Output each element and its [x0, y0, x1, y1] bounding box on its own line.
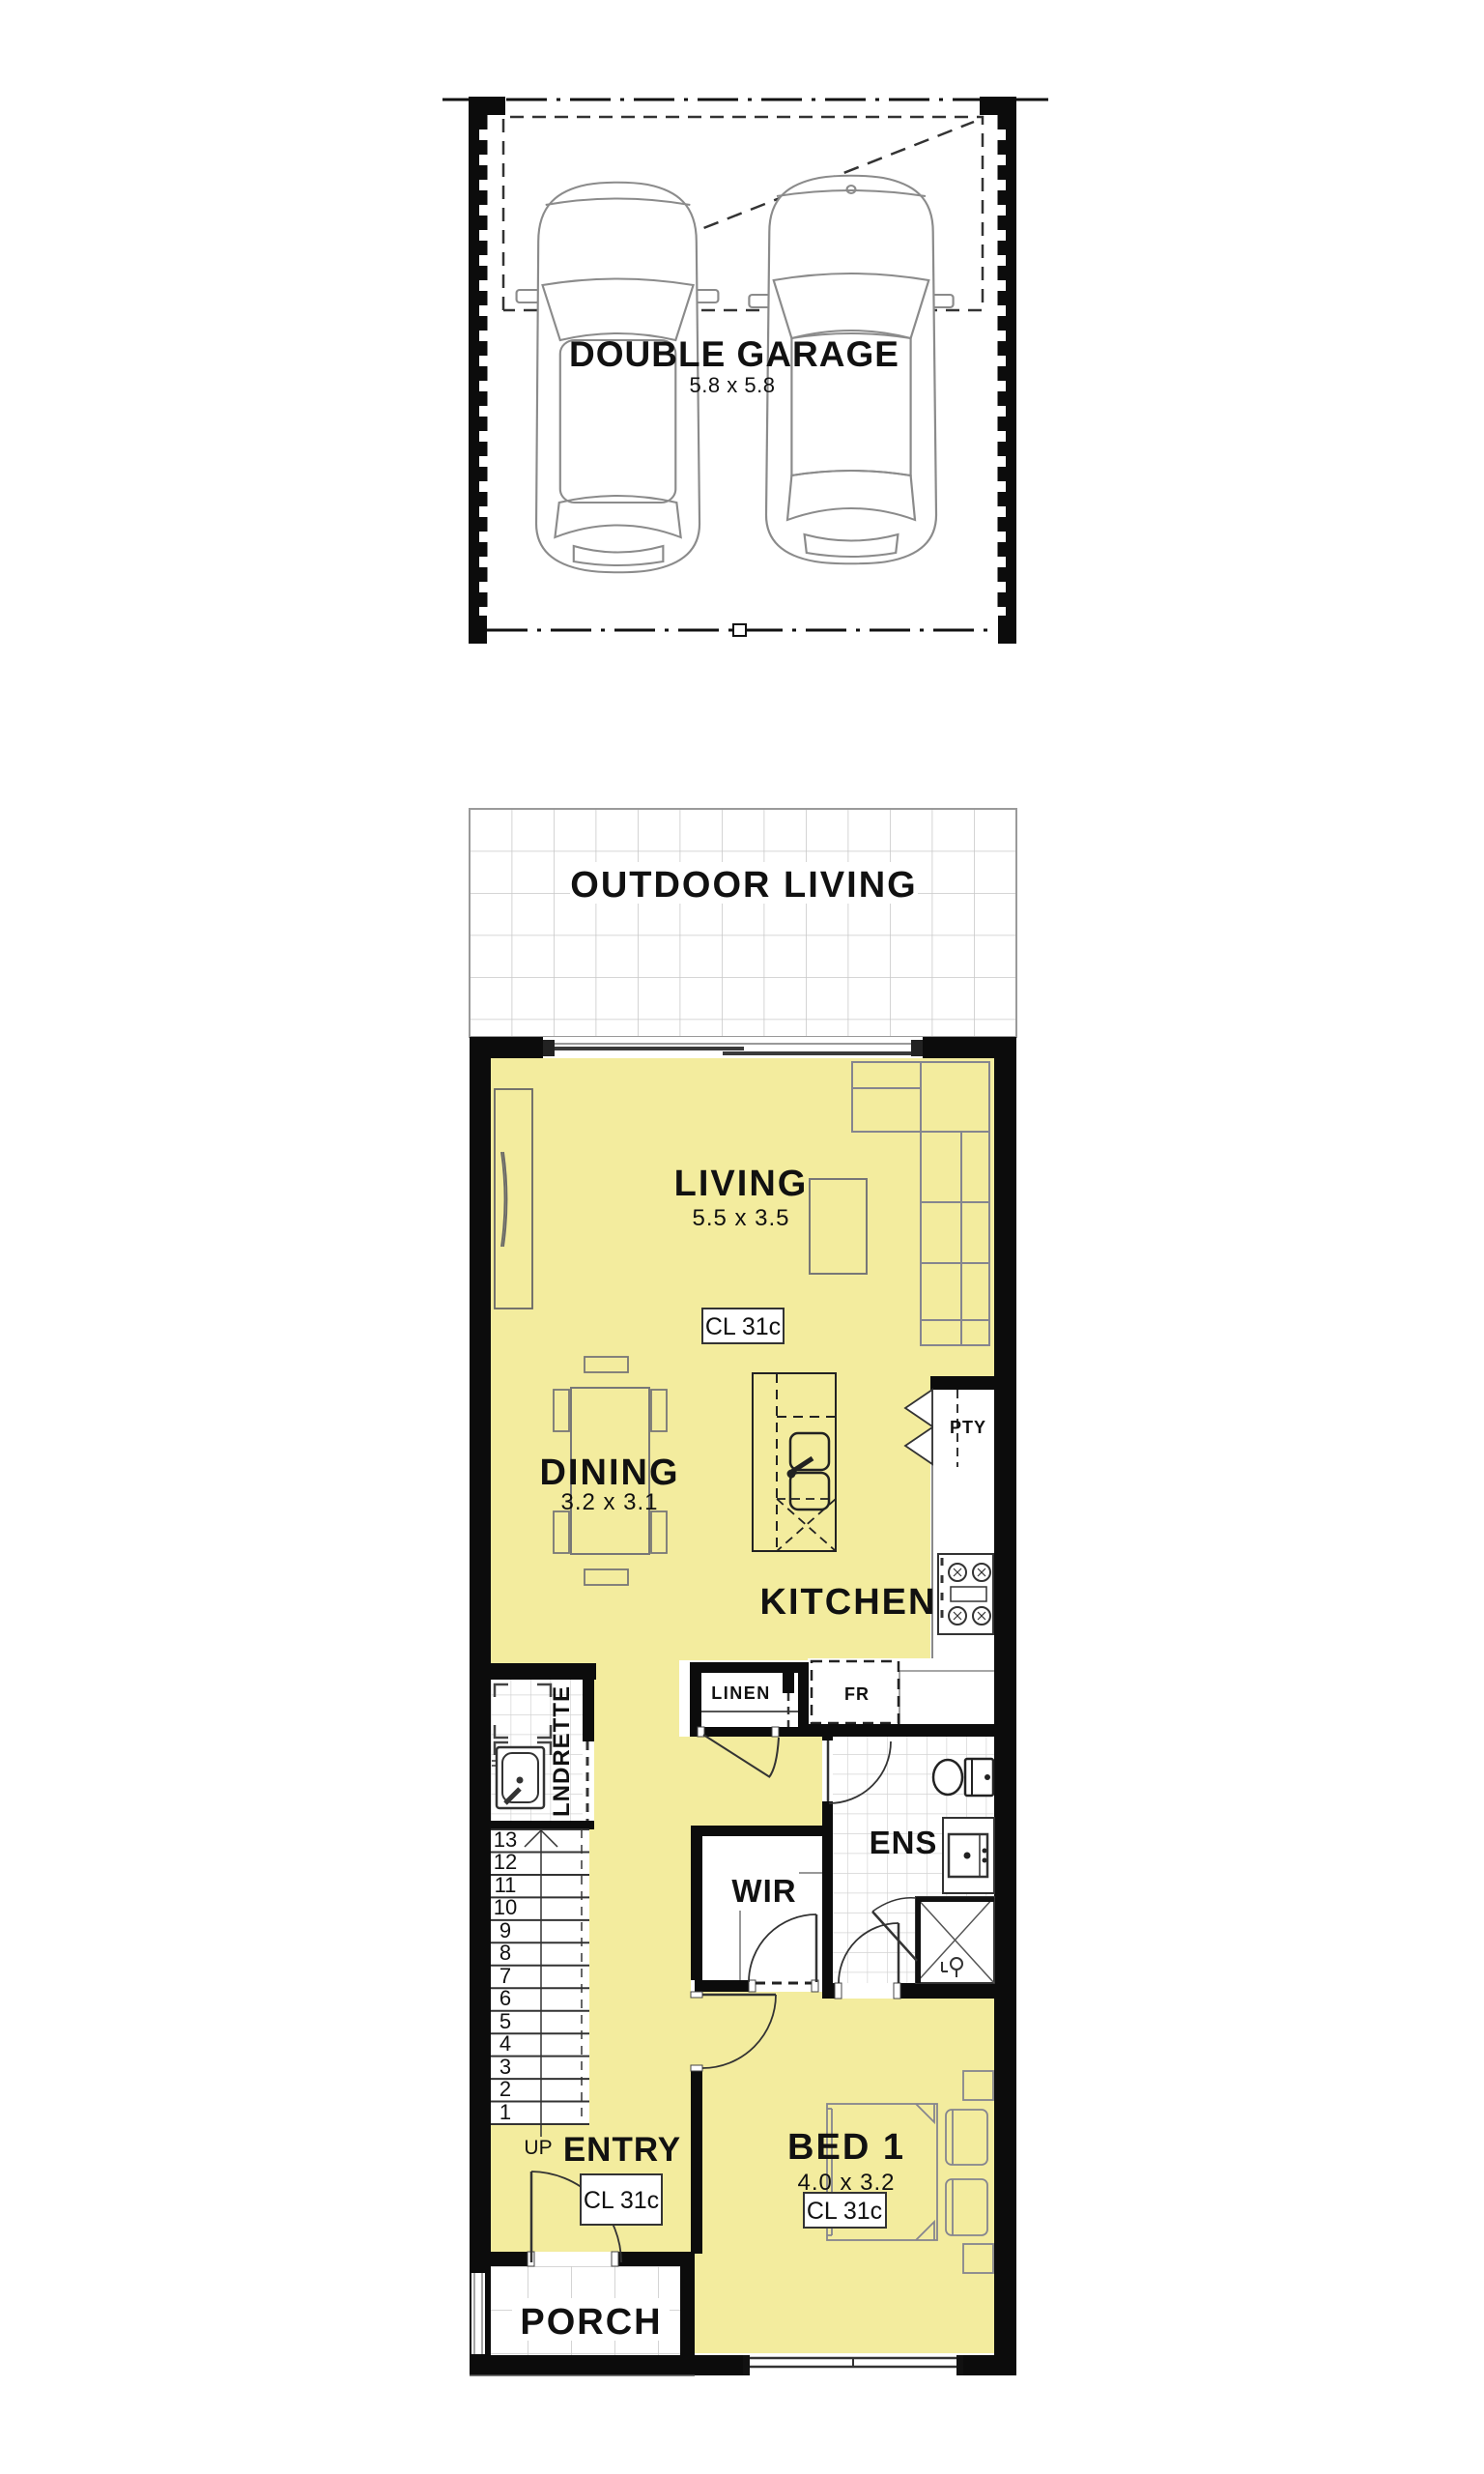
svg-text:4.0 x 3.2: 4.0 x 3.2: [797, 2170, 895, 2196]
svg-text:PORCH: PORCH: [520, 2302, 662, 2343]
svg-text:ENTRY: ENTRY: [563, 2131, 681, 2169]
svg-text:FR: FR: [844, 1684, 870, 1704]
svg-text:KITCHEN: KITCHEN: [760, 1582, 937, 1623]
svg-text:ENS: ENS: [870, 1825, 938, 1860]
svg-text:1: 1: [499, 2100, 511, 2124]
svg-text:7: 7: [499, 1964, 511, 1988]
svg-text:4: 4: [499, 2031, 511, 2056]
svg-text:10: 10: [494, 1895, 517, 1919]
svg-text:3.2 x 3.1: 3.2 x 3.1: [560, 1489, 658, 1515]
svg-text:BED 1: BED 1: [787, 2127, 905, 2168]
svg-text:DINING: DINING: [540, 1453, 680, 1493]
svg-text:13: 13: [494, 1827, 517, 1852]
svg-text:WIR: WIR: [731, 1873, 796, 1909]
svg-text:2: 2: [499, 2077, 511, 2101]
svg-text:LIVING: LIVING: [674, 1164, 809, 1204]
svg-text:UP: UP: [524, 2137, 552, 2159]
svg-text:9: 9: [499, 1918, 511, 1942]
svg-text:CL 31c: CL 31c: [807, 2198, 882, 2225]
svg-text:12: 12: [494, 1850, 517, 1874]
svg-text:5.5 x 3.5: 5.5 x 3.5: [692, 1205, 789, 1231]
svg-text:3: 3: [499, 2055, 511, 2079]
svg-text:8: 8: [499, 1941, 511, 1965]
svg-text:DOUBLE GARAGE: DOUBLE GARAGE: [569, 334, 899, 374]
svg-text:11: 11: [495, 1873, 517, 1897]
svg-text:6: 6: [499, 1986, 511, 2010]
svg-text:LINEN: LINEN: [711, 1683, 771, 1703]
svg-text:5.8 x 5.8: 5.8 x 5.8: [690, 373, 776, 397]
svg-text:OUTDOOR LIVING: OUTDOOR LIVING: [570, 865, 917, 906]
svg-text:PTY: PTY: [950, 1418, 986, 1437]
svg-text:5: 5: [499, 2009, 511, 2033]
svg-text:CL 31c: CL 31c: [705, 1313, 781, 1340]
svg-text:LNDRETTE: LNDRETTE: [549, 1685, 575, 1817]
svg-text:CL 31c: CL 31c: [584, 2187, 659, 2214]
